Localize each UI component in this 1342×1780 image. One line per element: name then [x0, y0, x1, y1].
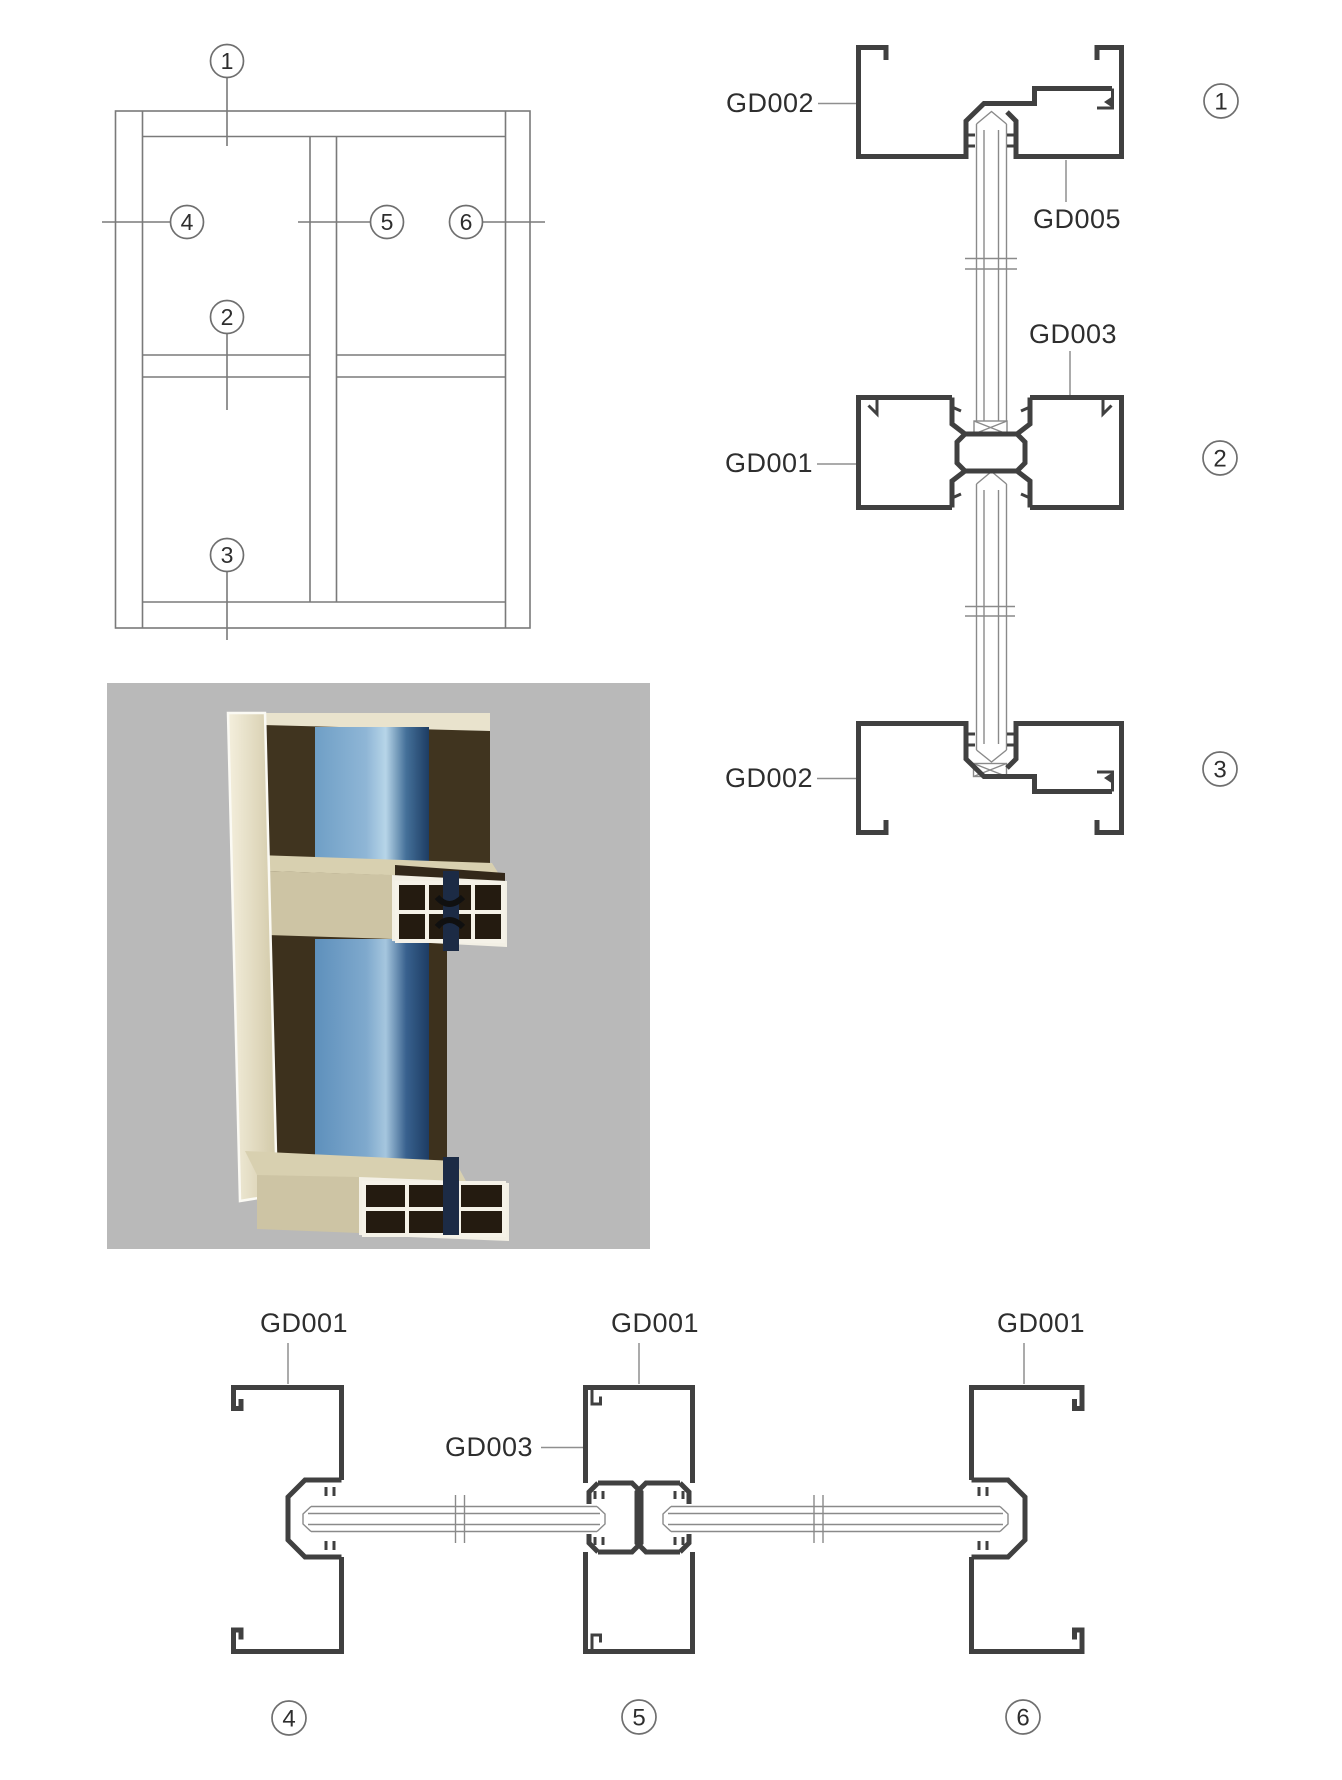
- elevation-drawing: 1 2 3 4 5 6: [102, 45, 545, 641]
- photo-glass-lower: [315, 939, 429, 1175]
- elevation-section-lines: [102, 78, 545, 641]
- label-gd001-detail6: GD001: [997, 1308, 1085, 1338]
- label-gd003-detail5: GD003: [445, 1432, 533, 1462]
- detail-2-transom-section: GD001 GD003 2: [725, 319, 1237, 508]
- callout-1-badge: 1: [211, 45, 244, 78]
- diagram-canvas: 1 2 3 4 5 6: [0, 0, 1342, 1780]
- break-mark: [456, 1495, 465, 1543]
- profile-photo: [107, 683, 650, 1249]
- callout-number: 3: [1213, 757, 1226, 784]
- label-gd002-detail3: GD002: [725, 763, 813, 793]
- callout-5-badge: 5: [371, 206, 404, 239]
- elevation-frame: [116, 111, 531, 628]
- glass-unit-horizontal-1: [303, 1495, 605, 1543]
- glass-unit-horizontal-2: [663, 1495, 1008, 1543]
- callout-number: 2: [221, 304, 234, 330]
- callout-number: 4: [282, 1706, 295, 1733]
- callout-1-section-badge: 1: [1204, 84, 1238, 118]
- detail-1-head-section: GD002 GD005 1: [726, 48, 1238, 235]
- photo-glass-edge: [443, 1157, 459, 1235]
- callout-number: 2: [1213, 446, 1226, 473]
- label-gd005-detail1: GD005: [1033, 204, 1121, 234]
- callout-number: 5: [632, 1705, 645, 1732]
- break-mark: [814, 1495, 823, 1543]
- callout-2-section-badge: 2: [1203, 441, 1237, 475]
- label-gd001-detail4: GD001: [260, 1308, 348, 1338]
- vertical-sections: GD002 GD005 1 GD001 GD003 2: [725, 48, 1238, 833]
- callout-number: 6: [1016, 1705, 1029, 1732]
- photo-glass-edge: [443, 871, 459, 951]
- callout-4-badge: 4: [171, 206, 204, 239]
- callout-5-section-badge: 5: [622, 1700, 656, 1734]
- detail-3-sill-section: GD002 3: [725, 724, 1237, 833]
- callout-number: 5: [381, 209, 394, 235]
- page: { "elevation": { "callouts": { "c1": "1"…: [0, 0, 1342, 1780]
- callout-number: 3: [221, 542, 234, 568]
- detail-4-jamb-section: GD001 4: [234, 1308, 349, 1735]
- horizontal-sections: GD001 4 GD001 GD003 5: [234, 1308, 1086, 1735]
- callout-number: 1: [221, 48, 234, 74]
- callout-3-section-badge: 3: [1203, 752, 1237, 786]
- photo-glass-upper: [315, 727, 429, 861]
- glass-unit-vertical-1: [965, 112, 1017, 422]
- callout-number: 6: [460, 209, 473, 235]
- detail-6-jamb-section: GD001 6: [972, 1308, 1086, 1734]
- label-gd003-detail2: GD003: [1029, 319, 1117, 349]
- break-mark: [965, 607, 1015, 617]
- snap-notch: [1104, 772, 1113, 784]
- callout-3-badge: 3: [211, 539, 244, 572]
- break-mark: [965, 259, 1017, 270]
- callout-number: 4: [181, 209, 194, 235]
- callout-6-section-badge: 6: [1006, 1700, 1040, 1734]
- glass-unit-vertical-2: [965, 472, 1015, 763]
- callout-4-section-badge: 4: [272, 1701, 306, 1735]
- label-gd002-detail1: GD002: [726, 88, 814, 118]
- detail-5-mullion-section: GD001 GD003 5: [445, 1308, 699, 1734]
- label-gd001-detail2: GD001: [725, 448, 813, 478]
- snap-notch: [1104, 96, 1113, 108]
- callout-number: 1: [1214, 89, 1227, 116]
- callout-6-badge: 6: [450, 206, 483, 239]
- label-gd001-detail5: GD001: [611, 1308, 699, 1338]
- callout-2-badge: 2: [211, 301, 244, 334]
